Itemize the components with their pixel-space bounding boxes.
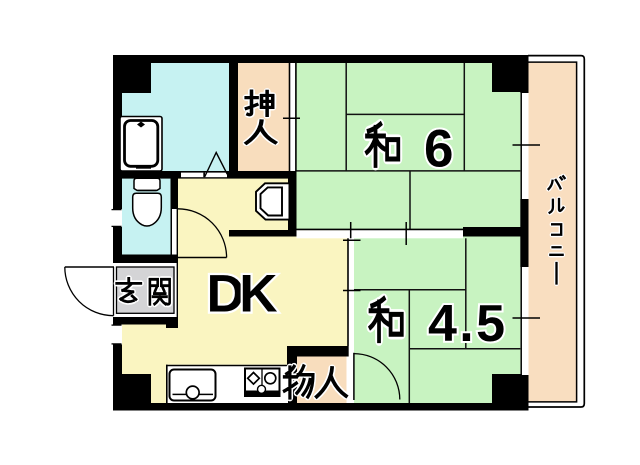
svg-text:6: 6 [424,120,453,179]
svg-text:DK: DK [207,265,278,324]
svg-text:4.5: 4.5 [428,295,505,353]
